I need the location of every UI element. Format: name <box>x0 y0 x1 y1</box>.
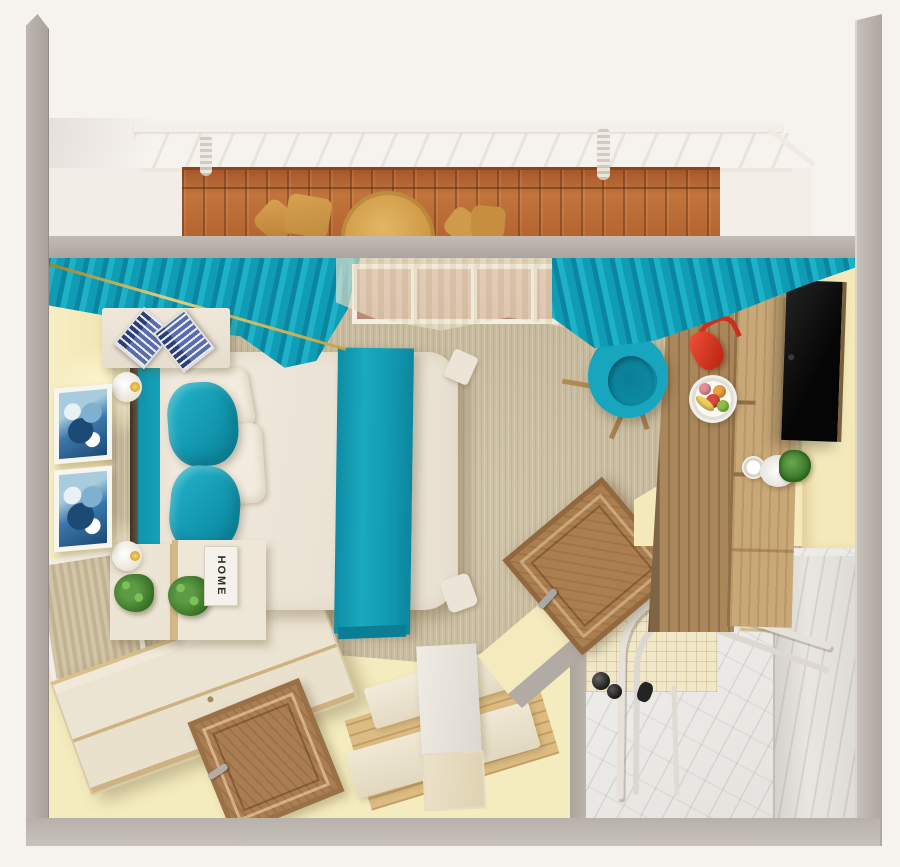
balcony-chair-left <box>256 196 332 240</box>
window-wall <box>26 236 879 260</box>
art-canvas <box>59 389 107 459</box>
shelf-divider <box>736 400 756 405</box>
deck-seam <box>182 187 720 189</box>
desk-chair <box>578 334 672 434</box>
chair-seat <box>608 356 654 406</box>
bed-runner <box>334 347 414 634</box>
balcony-railing-balusters <box>134 133 794 171</box>
fruit <box>699 383 711 395</box>
lamp-gold-detail <box>130 382 140 392</box>
fruit <box>717 400 729 412</box>
bench-table-base <box>422 750 487 811</box>
right-outer-wall <box>855 14 882 846</box>
wall-lamp <box>112 541 142 571</box>
lamp-gold-detail <box>130 551 140 561</box>
wall-lamp <box>112 372 142 402</box>
dresser-knob <box>207 696 215 704</box>
art-canvas <box>59 471 107 547</box>
balcony-floor-left <box>48 168 184 236</box>
shower-fixture <box>607 684 622 699</box>
awning-spring <box>200 134 212 176</box>
bottom-outer-wall <box>26 818 880 846</box>
balcony-railing <box>134 124 782 132</box>
chair-cushion <box>283 192 333 239</box>
wall-art <box>54 383 112 464</box>
plant <box>114 574 154 612</box>
tv <box>781 280 847 442</box>
left-outer-wall <box>26 14 49 846</box>
chair-cushion <box>470 205 507 240</box>
balcony-floor-right <box>718 168 811 236</box>
tv-detail <box>788 354 794 360</box>
bench-table <box>416 644 482 755</box>
home-sign-text: HOME <box>215 556 227 597</box>
awning-spring <box>597 128 610 180</box>
floor-plan-render: HOME <box>0 0 900 867</box>
fruit-plate <box>689 375 737 423</box>
home-sign: HOME <box>204 546 238 606</box>
shelf-divider <box>732 548 794 553</box>
wall-art <box>54 465 112 552</box>
